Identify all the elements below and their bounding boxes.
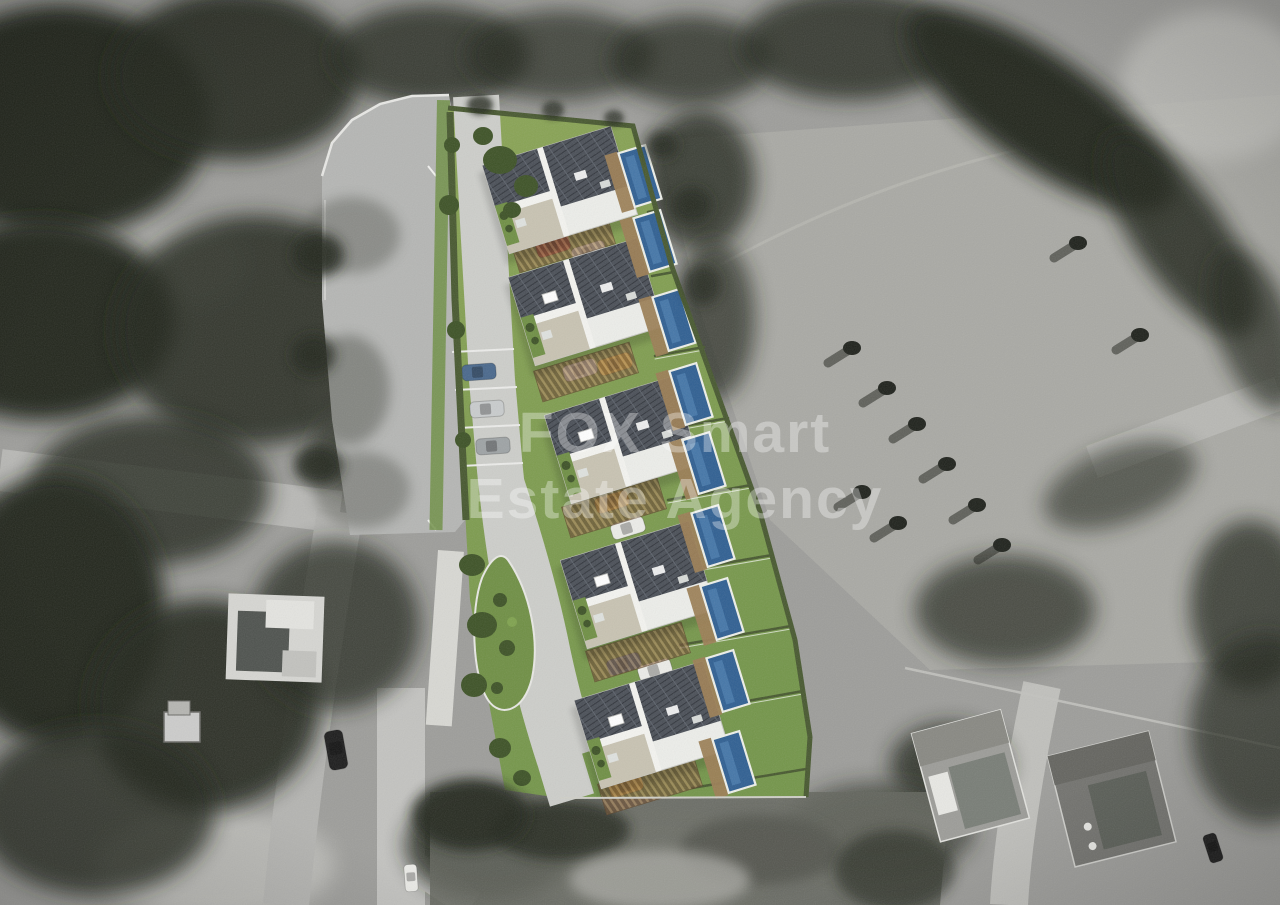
aerial-site-photo: FOX Smart Estate Agency bbox=[0, 0, 1280, 905]
vignette bbox=[0, 0, 1280, 905]
scene-svg bbox=[0, 0, 1280, 905]
